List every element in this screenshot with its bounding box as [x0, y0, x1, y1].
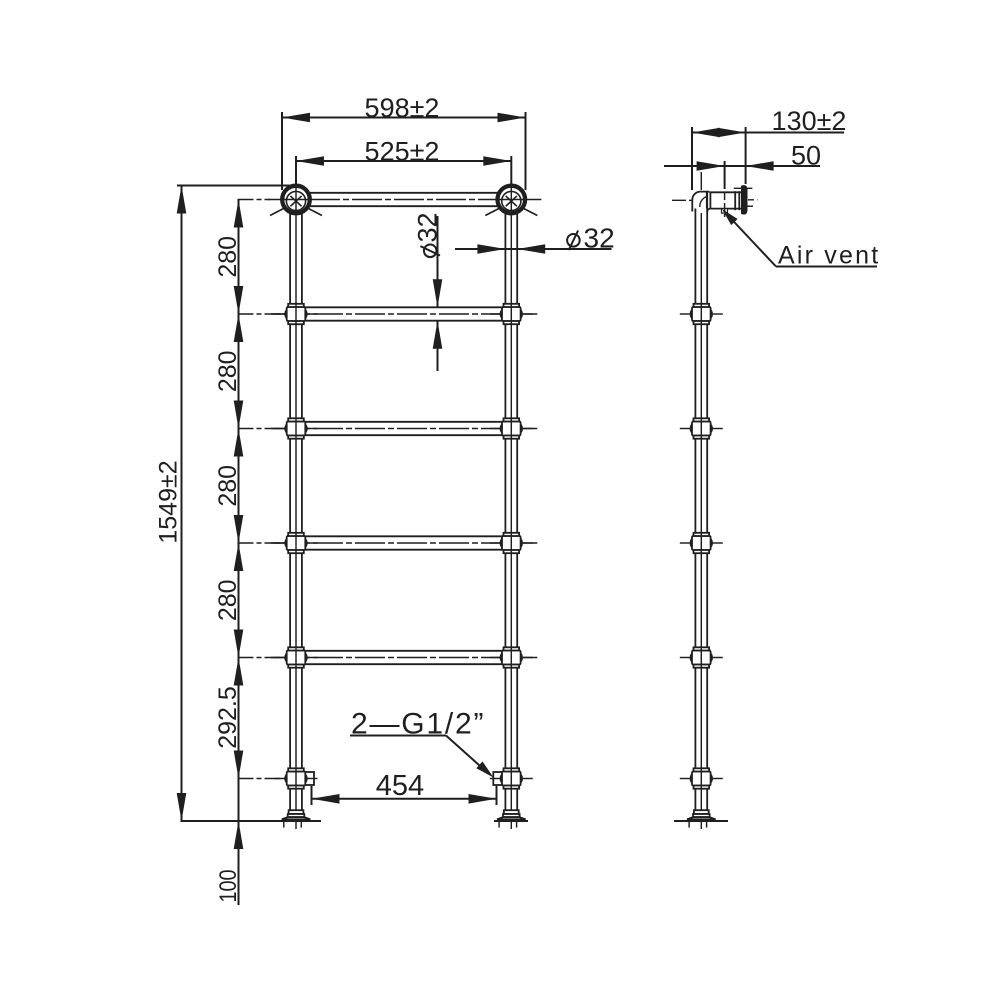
svg-text:32: 32 [584, 223, 615, 254]
svg-text:Air vent: Air vent [778, 242, 880, 270]
svg-text:280: 280 [214, 350, 242, 392]
svg-text:280: 280 [214, 236, 242, 278]
svg-text:130±2: 130±2 [772, 106, 847, 136]
svg-text:50: 50 [791, 141, 821, 171]
svg-text:292.5: 292.5 [214, 686, 242, 749]
svg-text:1549±2: 1549±2 [155, 460, 183, 543]
svg-text:280: 280 [214, 465, 242, 507]
svg-text:280: 280 [214, 579, 242, 621]
svg-text:598±2: 598±2 [365, 93, 440, 123]
svg-text:525±2: 525±2 [365, 137, 440, 167]
svg-text:32: 32 [413, 212, 443, 242]
svg-text:100: 100 [215, 870, 242, 903]
svg-text:454: 454 [376, 770, 424, 802]
